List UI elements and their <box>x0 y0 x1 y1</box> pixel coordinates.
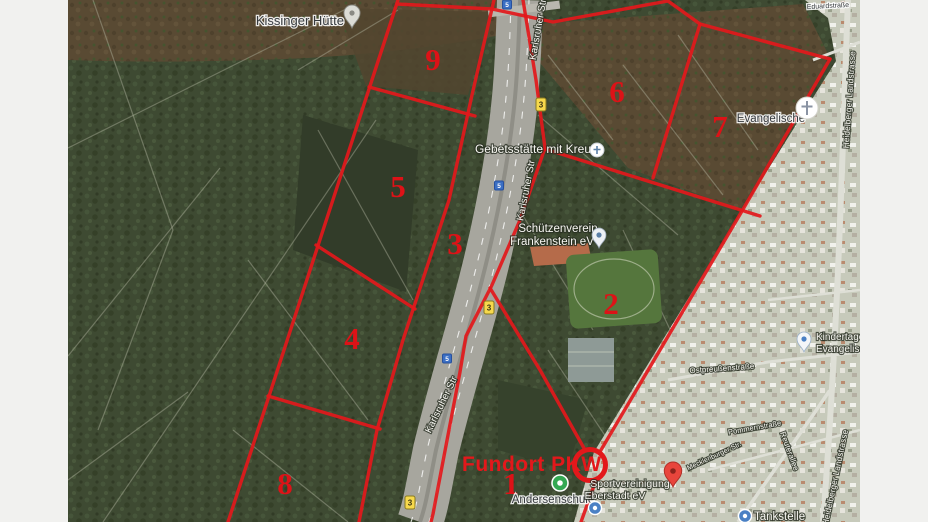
kindergarten-pin-dot <box>801 336 806 341</box>
route-badge-a5-north: 5 <box>503 0 512 9</box>
schuetzenverein-pin-dot <box>596 232 601 237</box>
region-number-8: 8 <box>277 466 293 501</box>
region-number-5: 5 <box>390 169 406 204</box>
region-number-7: 7 <box>712 109 728 144</box>
svg-text:3: 3 <box>539 101 544 110</box>
sportvereinigung-label-line2: Eberstadt eV <box>585 490 646 502</box>
schuetzenverein-label-line1: Schützenverein <box>518 223 597 235</box>
schuetzenverein-label-line2: Frankenstein eV <box>510 236 594 248</box>
route-badge-a5-mid: 5 <box>495 181 504 190</box>
fundort-pkw-label: Fundort PKW <box>462 453 602 476</box>
red-place-pin-dot <box>670 468 676 474</box>
courts <box>568 338 614 382</box>
kissinger-pin-dot <box>349 10 354 15</box>
sportvereinigung-pin-dot <box>557 480 563 486</box>
evangelische-label: Evangelische <box>737 113 805 125</box>
svg-text:3: 3 <box>487 304 492 313</box>
gas-station-icon-dot <box>743 514 747 518</box>
route-badge-b3-north: 3 <box>536 98 546 111</box>
region-number-9: 9 <box>425 42 441 77</box>
region-number-4: 4 <box>344 321 360 356</box>
kissinger-huette-label: Kissinger Hütte <box>256 13 344 28</box>
school-icon-dot <box>593 506 597 510</box>
gebetsstaette-label: Gebetsstätte mit Kreuz <box>475 142 597 156</box>
svg-text:5: 5 <box>497 183 501 190</box>
region-number-3: 3 <box>447 226 463 261</box>
route-badge-a5-south: 5 <box>443 354 452 363</box>
svg-text:3: 3 <box>408 499 413 508</box>
map-canvas[interactable]: 1 2 3 4 5 6 7 8 9 Fundort PKW Kissinger … <box>68 0 860 522</box>
satellite-base <box>68 0 860 522</box>
tankstelle-label: Tankstelle <box>754 511 805 522</box>
map-svg: 1 2 3 4 5 6 7 8 9 Fundort PKW Kissinger … <box>68 0 860 522</box>
svg-text:5: 5 <box>505 2 509 9</box>
route-badge-b3-south: 3 <box>405 496 415 509</box>
kindertagesstaette-label-line2: Evangelisc <box>816 344 860 355</box>
page-background: 1 2 3 4 5 6 7 8 9 Fundort PKW Kissinger … <box>0 0 928 522</box>
region-number-2: 2 <box>603 286 619 321</box>
kindertagesstaette-label-line1: Kindertage <box>816 332 860 343</box>
andersenschule-label: Andersenschule <box>512 494 594 506</box>
svg-text:5: 5 <box>445 356 449 363</box>
route-badge-b3-mid: 3 <box>484 301 494 314</box>
region-number-6: 6 <box>609 74 625 109</box>
sportvereinigung-label-line1: Sportvereinigung <box>590 478 670 490</box>
